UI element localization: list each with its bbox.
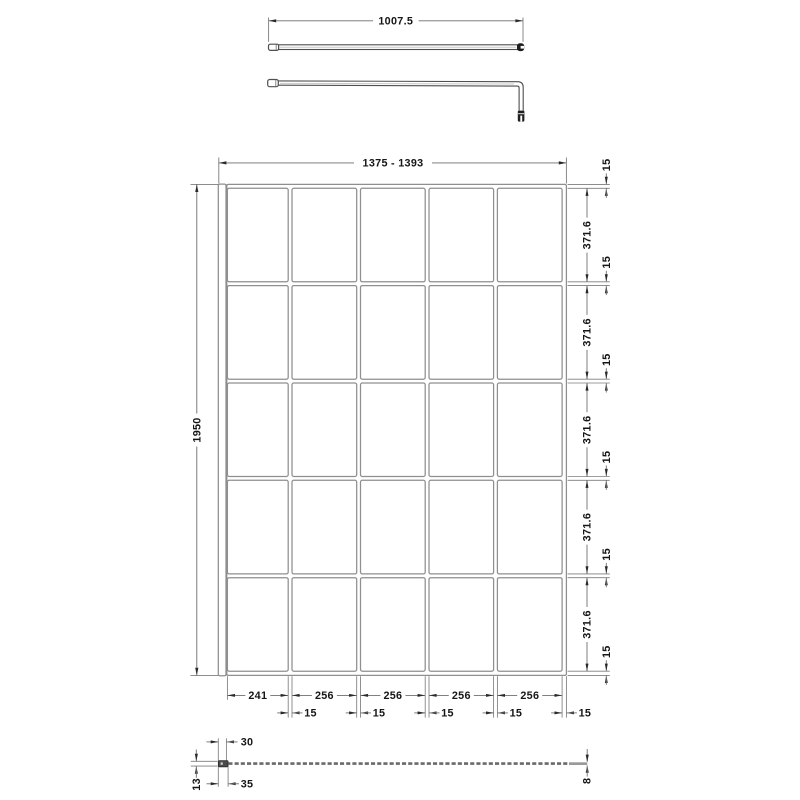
svg-text:15: 15: [373, 707, 386, 719]
svg-text:15: 15: [304, 707, 317, 719]
svg-text:1375 - 1393: 1375 - 1393: [363, 158, 424, 170]
svg-text:15: 15: [601, 548, 613, 561]
svg-text:371.6: 371.6: [581, 513, 593, 542]
svg-text:256: 256: [383, 690, 402, 702]
svg-text:256: 256: [315, 690, 334, 702]
svg-text:256: 256: [452, 690, 471, 702]
svg-text:8: 8: [582, 778, 594, 784]
svg-text:15: 15: [601, 256, 613, 269]
svg-text:371.6: 371.6: [581, 610, 593, 639]
svg-text:371.6: 371.6: [581, 318, 593, 347]
svg-text:15: 15: [510, 707, 523, 719]
svg-text:13: 13: [191, 778, 203, 791]
svg-text:371.6: 371.6: [581, 221, 593, 250]
svg-text:1007.5: 1007.5: [378, 15, 413, 27]
svg-text:1950: 1950: [191, 417, 203, 442]
svg-text:35: 35: [241, 778, 254, 790]
svg-text:241: 241: [248, 690, 267, 702]
svg-text:371.6: 371.6: [581, 416, 593, 445]
svg-text:15: 15: [441, 707, 454, 719]
svg-text:15: 15: [601, 159, 613, 172]
svg-text:15: 15: [601, 645, 613, 658]
svg-text:256: 256: [520, 690, 539, 702]
svg-text:15: 15: [601, 353, 613, 366]
svg-text:15: 15: [579, 707, 592, 719]
svg-text:15: 15: [601, 451, 613, 464]
svg-text:30: 30: [241, 736, 254, 748]
